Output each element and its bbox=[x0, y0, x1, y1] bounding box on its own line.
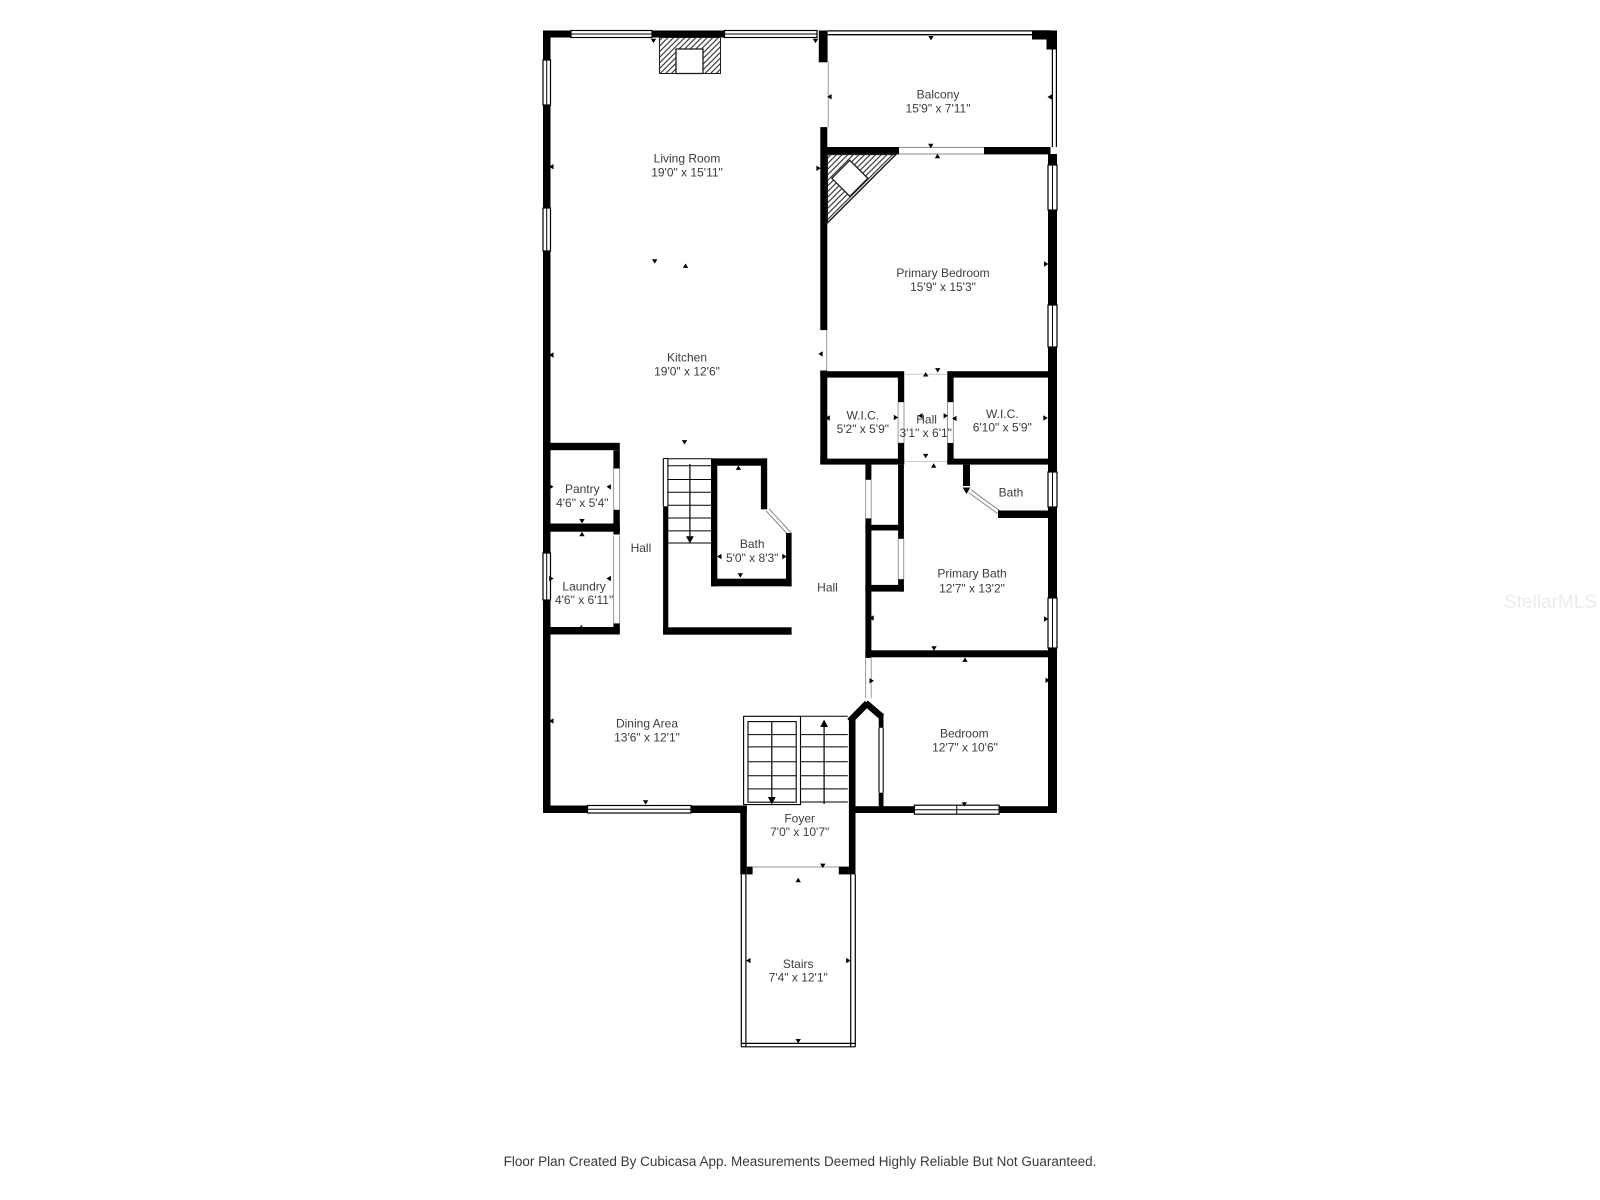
svg-text:12'7" x 10'6": 12'7" x 10'6" bbox=[932, 740, 998, 754]
svg-text:Laundry: Laundry bbox=[562, 579, 605, 593]
svg-text:Hall: Hall bbox=[916, 413, 937, 427]
svg-text:Hall: Hall bbox=[817, 581, 838, 595]
svg-text:Bedroom: Bedroom bbox=[940, 727, 989, 741]
svg-text:Primary Bedroom: Primary Bedroom bbox=[896, 266, 989, 280]
svg-text:7'4" x 12'1": 7'4" x 12'1" bbox=[769, 971, 828, 985]
svg-text:Primary Bath: Primary Bath bbox=[937, 567, 1006, 581]
svg-text:Hall: Hall bbox=[631, 541, 652, 555]
svg-text:5'0" x 8'3": 5'0" x 8'3" bbox=[726, 551, 778, 565]
svg-text:Bath: Bath bbox=[740, 537, 765, 551]
svg-text:4'6" x 6'11": 4'6" x 6'11" bbox=[555, 593, 613, 607]
svg-text:StellarMLS: StellarMLS bbox=[1504, 592, 1597, 613]
svg-text:19'0" x 12'6": 19'0" x 12'6" bbox=[654, 365, 720, 379]
svg-text:W.I.C.: W.I.C. bbox=[986, 407, 1019, 421]
svg-text:Floor Plan Created By Cubicasa: Floor Plan Created By Cubicasa App. Meas… bbox=[504, 1154, 1097, 1169]
svg-text:Balcony: Balcony bbox=[917, 88, 960, 102]
svg-text:3'1" x 6'1": 3'1" x 6'1" bbox=[899, 426, 951, 440]
svg-text:6'10" x 5'9": 6'10" x 5'9" bbox=[973, 421, 1032, 435]
svg-text:Living Room: Living Room bbox=[654, 152, 721, 166]
svg-text:5'2" x 5'9": 5'2" x 5'9" bbox=[837, 422, 889, 436]
svg-text:15'9" x 15'3": 15'9" x 15'3" bbox=[910, 280, 976, 294]
svg-text:15'9" x 7'11": 15'9" x 7'11" bbox=[906, 102, 971, 116]
svg-text:12'7" x 13'2": 12'7" x 13'2" bbox=[939, 582, 1005, 596]
svg-text:Bath: Bath bbox=[999, 486, 1024, 500]
svg-text:Dining Area: Dining Area bbox=[616, 717, 678, 731]
svg-text:4'6" x 5'4": 4'6" x 5'4" bbox=[556, 496, 608, 510]
svg-text:W.I.C.: W.I.C. bbox=[846, 409, 879, 423]
svg-text:13'6" x 12'1": 13'6" x 12'1" bbox=[614, 731, 680, 745]
svg-text:19'0" x 15'11": 19'0" x 15'11" bbox=[651, 166, 723, 180]
svg-text:Kitchen: Kitchen bbox=[667, 351, 707, 365]
svg-text:Stairs: Stairs bbox=[783, 957, 814, 971]
svg-text:Pantry: Pantry bbox=[565, 482, 600, 496]
svg-text:Foyer: Foyer bbox=[784, 812, 815, 826]
svg-text:7'0" x 10'7": 7'0" x 10'7" bbox=[770, 825, 829, 839]
